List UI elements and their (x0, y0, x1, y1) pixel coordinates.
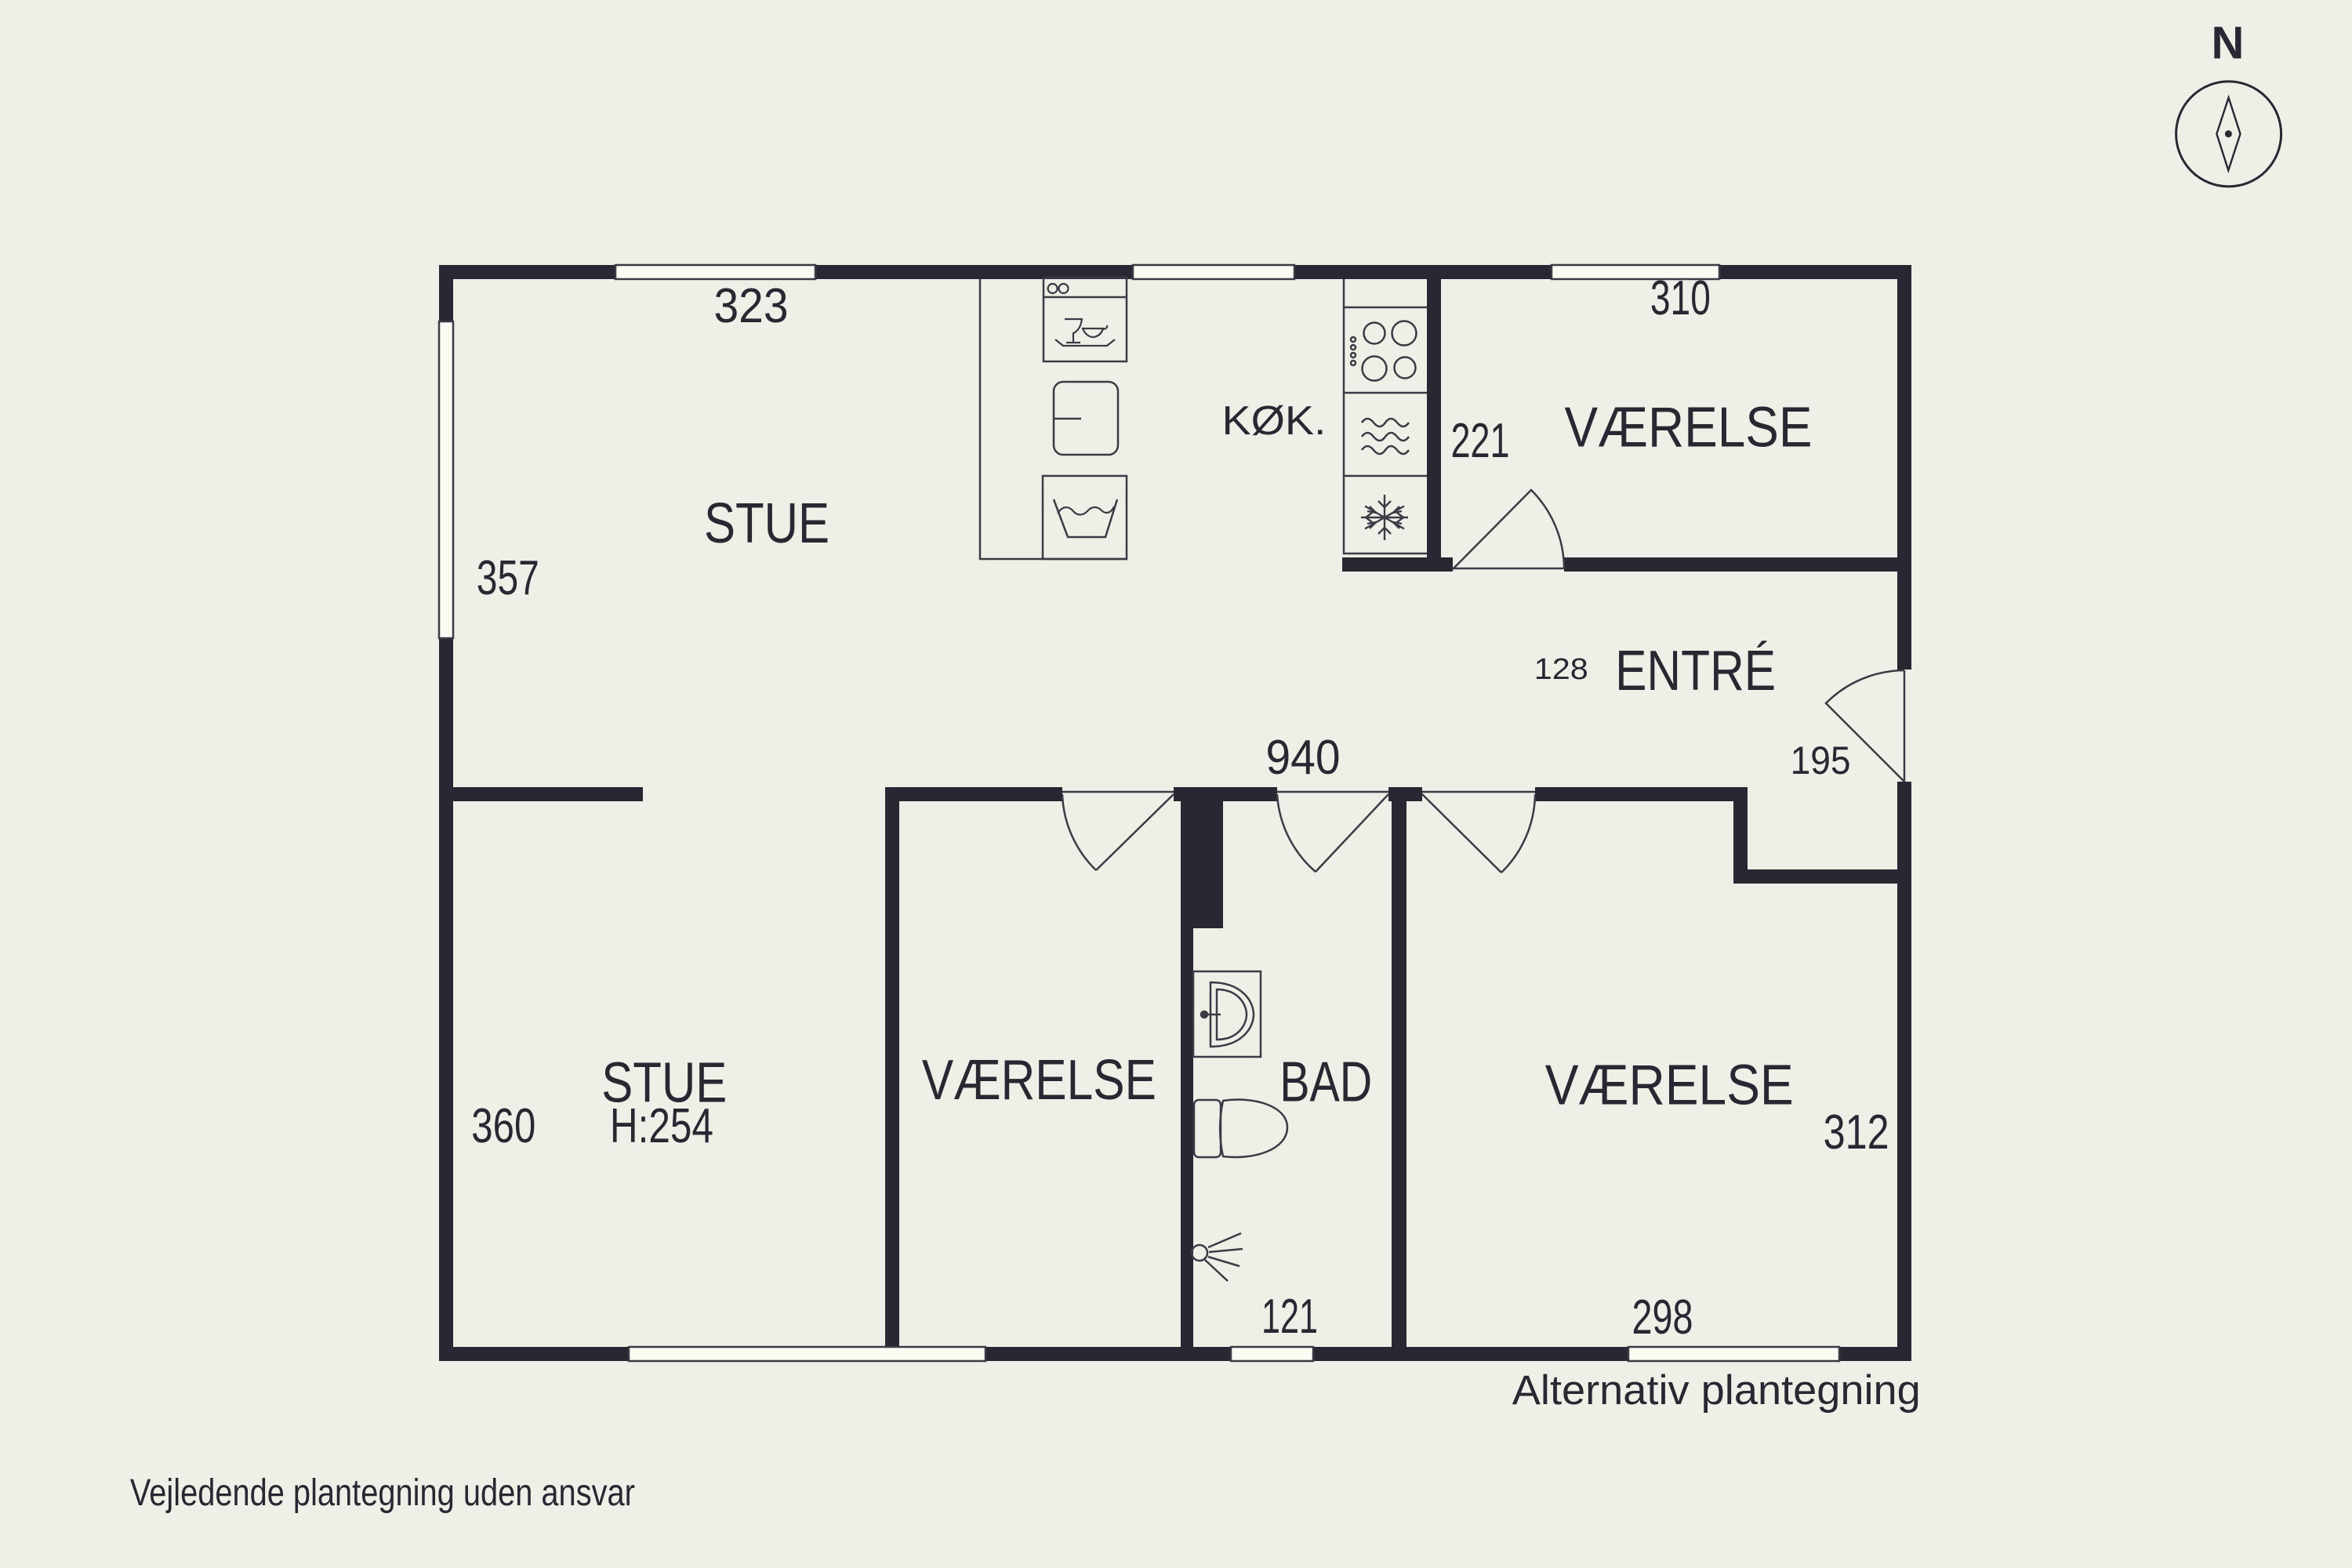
svg-text:360: 360 (471, 1099, 535, 1153)
svg-text:323: 323 (714, 279, 789, 333)
svg-text:KØK.: KØK. (1222, 398, 1327, 444)
svg-text:ENTRÉ: ENTRÉ (1615, 640, 1776, 702)
svg-text:Vejledende plantegning uden an: Vejledende plantegning uden ansvar (130, 1472, 635, 1514)
svg-text:VÆRELSE: VÆRELSE (1565, 397, 1813, 459)
svg-text:N: N (2212, 18, 2245, 69)
svg-text:298: 298 (1632, 1290, 1693, 1345)
svg-text:STUE: STUE (601, 1052, 727, 1115)
svg-text:BAD: BAD (1279, 1051, 1372, 1113)
svg-text:128: 128 (1534, 653, 1588, 686)
svg-text:121: 121 (1261, 1290, 1318, 1344)
svg-text:310: 310 (1650, 271, 1711, 325)
svg-text:940: 940 (1266, 731, 1341, 785)
svg-text:221: 221 (1451, 414, 1510, 468)
svg-text:STUE: STUE (704, 492, 829, 555)
svg-text:VÆRELSE: VÆRELSE (1545, 1054, 1794, 1116)
svg-text:195: 195 (1791, 739, 1851, 782)
svg-text:Alternativ plantegning: Alternativ plantegning (1512, 1367, 1921, 1414)
svg-text:312: 312 (1824, 1105, 1889, 1160)
svg-text:VÆRELSE: VÆRELSE (922, 1049, 1156, 1112)
svg-text:357: 357 (477, 551, 539, 605)
